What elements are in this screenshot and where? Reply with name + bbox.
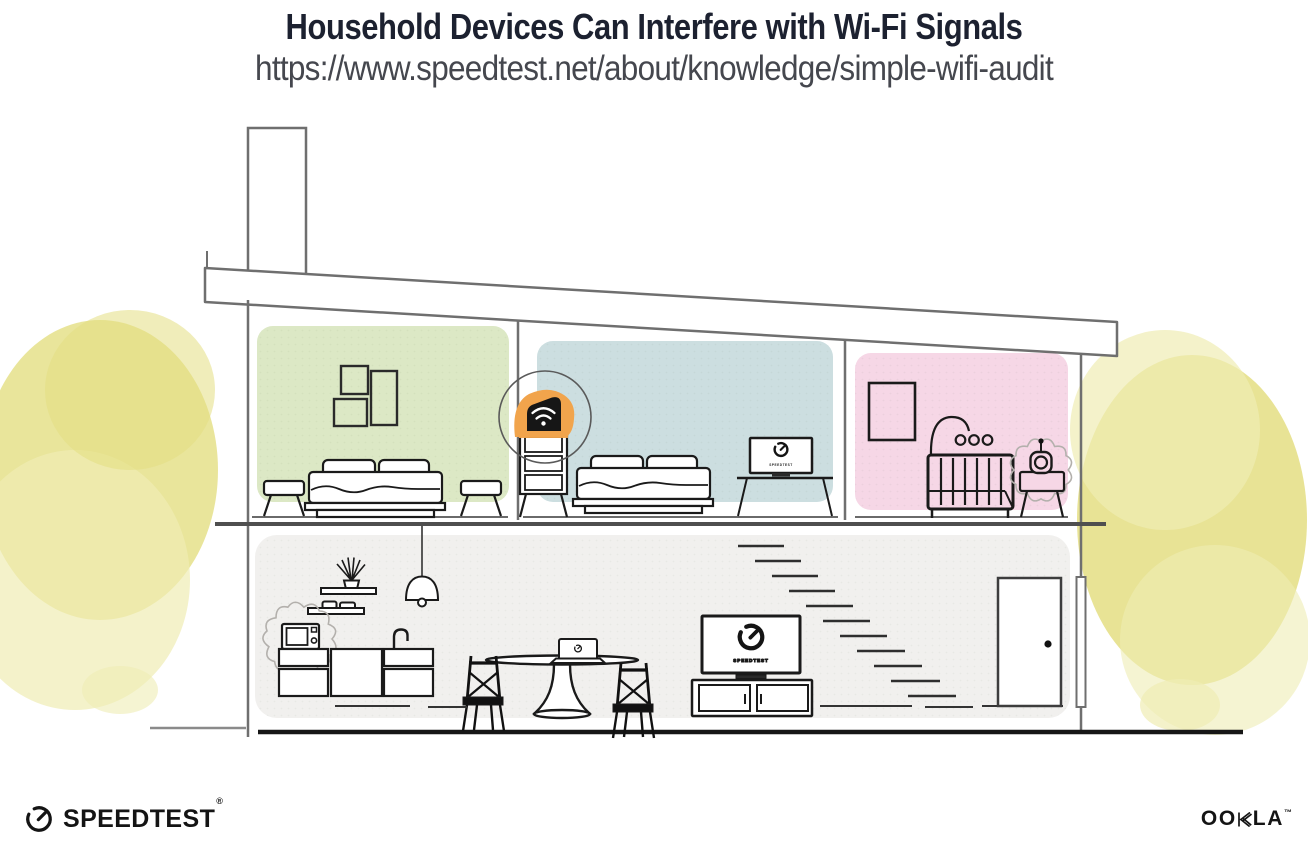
entry-door [998,578,1061,706]
chimney [248,128,306,290]
tv-screen-label: SPEEDTEST [769,463,792,467]
speedtest-gauge-icon [24,804,54,834]
foliage-left [0,310,218,714]
ookla-logo: OO LA ™ [1201,807,1292,831]
bed [573,456,713,513]
ookla-wordmark-left: OO [1201,807,1237,831]
bed [305,460,445,517]
baby-monitor-icon [1031,452,1052,473]
foliage-right [1070,330,1308,735]
media-console [692,680,812,716]
microwave-group [282,624,319,649]
side-table [1020,472,1064,491]
trademark-mark: ™ [1284,808,1292,817]
infographic-page: Household Devices Can Interfere with Wi-… [0,0,1308,861]
door-knob [1044,640,1051,647]
ookla-k-icon [1237,812,1252,827]
tv-group: SPEEDTEST [702,616,800,679]
ookla-wordmark-right: LA [1253,807,1284,831]
registered-mark: ® [216,796,223,806]
speedtest-wordmark: SPEEDTEST [63,805,215,833]
house-cross-section-illustration: SPEEDTEST [0,0,1308,861]
tv-screen-label: SPEEDTEST [733,658,768,663]
door [998,578,1061,706]
speedtest-logo: SPEEDTEST® [24,804,222,834]
downspout [1077,577,1086,707]
laptop-icon [551,639,605,663]
